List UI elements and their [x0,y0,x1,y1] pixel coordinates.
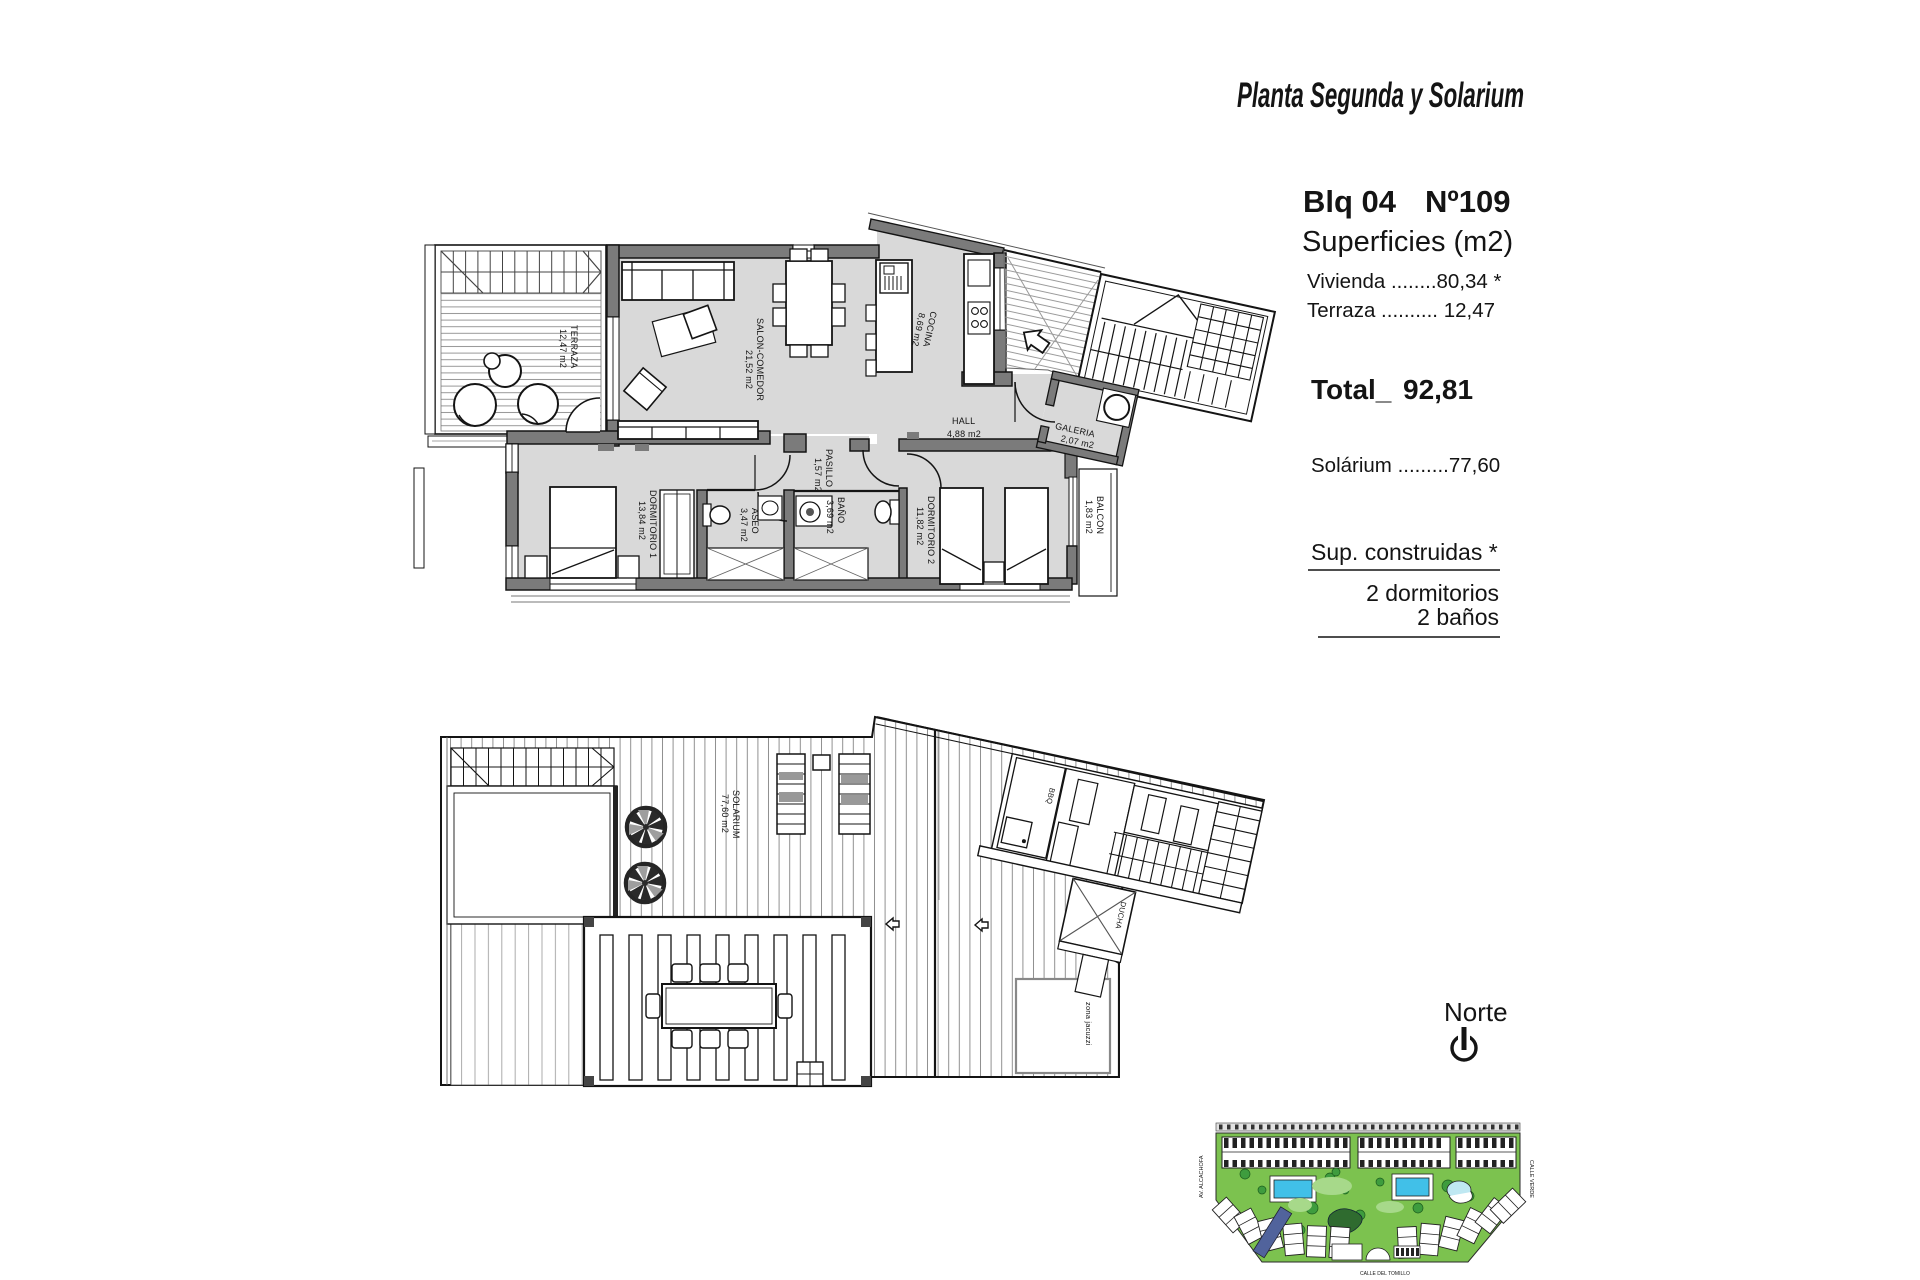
svg-text:3,69 m2: 3,69 m2 [825,500,835,534]
svg-text:DORMITORIO 1: DORMITORIO 1 [648,490,658,558]
svg-text:12,47 m2: 12,47 m2 [558,329,568,368]
svg-text:2 baños: 2 baños [1417,604,1499,630]
svg-text:BALCON: BALCON [1095,496,1105,534]
svg-text:1,57 m2: 1,57 m2 [813,458,823,492]
svg-text:TERRAZA: TERRAZA [569,325,579,368]
svg-text:DORMITORIO 2: DORMITORIO 2 [926,496,936,564]
svg-text:Norte: Norte [1444,997,1508,1027]
svg-text:Superficies (m2): Superficies (m2) [1302,226,1513,258]
svg-text:CALLE DEL TOMILLO: CALLE DEL TOMILLO [1360,1271,1410,1277]
svg-text:AV. ALCACHOFA: AV. ALCACHOFA [1199,1155,1205,1198]
svg-text:Blq 04: Blq 04 [1303,184,1397,219]
svg-text:2 dormitorios: 2 dormitorios [1366,580,1499,606]
svg-text:11,82 m2: 11,82 m2 [915,507,925,545]
svg-text:77,60 m2: 77,60 m2 [720,794,730,833]
svg-text:PASILLO: PASILLO [824,449,834,487]
svg-text:13,84 m2: 13,84 m2 [637,501,647,540]
svg-text:ASEO: ASEO [750,508,760,534]
svg-text:4,88 m2: 4,88 m2 [947,429,981,439]
svg-text:Sup. construidas *: Sup. construidas * [1311,539,1498,565]
svg-text:SOLARIUM: SOLARIUM [731,790,741,839]
svg-text:21,52 m2: 21,52 m2 [744,350,754,389]
svg-text:Planta Segunda y Solarium: Planta Segunda y Solarium [1237,76,1524,115]
svg-text:Nº109: Nº109 [1425,184,1510,219]
svg-text:BAÑO: BAÑO [836,497,846,523]
svg-text:1,83 m2: 1,83 m2 [1084,500,1094,534]
svg-text:Solárium .........77,60: Solárium .........77,60 [1311,454,1500,477]
svg-text:zona jacuzzi: zona jacuzzi [1084,1002,1093,1046]
svg-text:Total_: Total_ [1311,374,1392,405]
svg-text:CALLE VERDE: CALLE VERDE [1528,1160,1534,1198]
svg-text:3,47 m2: 3,47 m2 [739,508,749,542]
svg-text:Terraza .......... 12,47: Terraza .......... 12,47 [1307,299,1495,322]
svg-text:SALON-COMEDOR: SALON-COMEDOR [755,318,765,401]
svg-text:HALL: HALL [952,416,975,426]
svg-text:Vivienda ........80,34 *: Vivienda ........80,34 * [1307,270,1502,293]
svg-text:92,81: 92,81 [1403,374,1473,405]
